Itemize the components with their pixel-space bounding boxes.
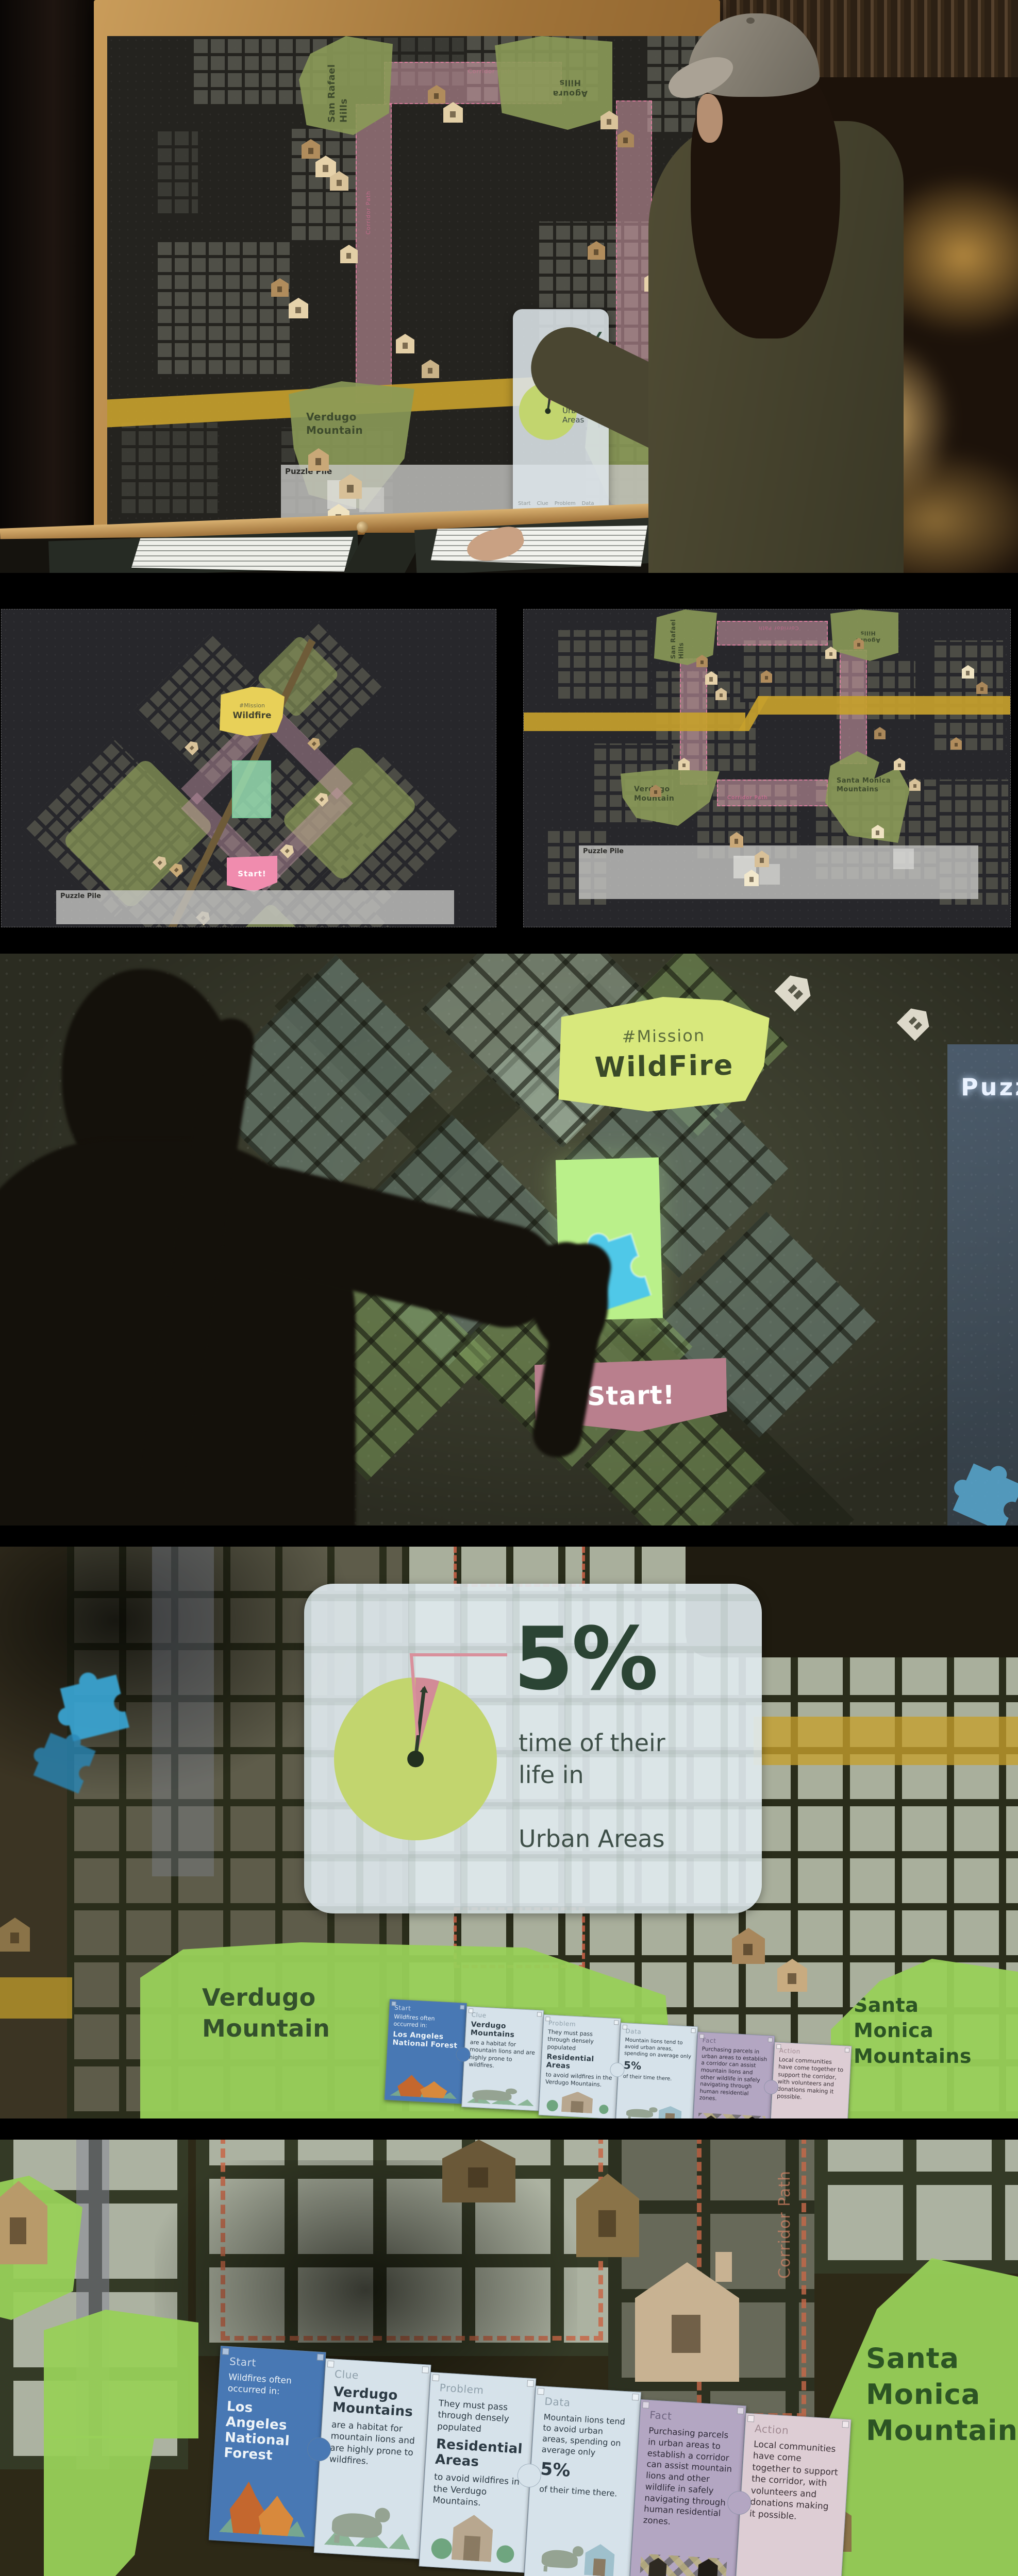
puzzle-card-body: are a habitat for mountain lions and are…	[469, 2039, 537, 2072]
puzzle-card-body: of their time there.	[623, 2073, 690, 2083]
house-chimney	[715, 2252, 732, 2282]
residential-illustration	[429, 2506, 519, 2563]
house-icon	[584, 2543, 615, 2576]
puzzle-side-sign: Puzzle	[947, 1044, 1018, 1526]
stat-caption-3: Urban Areas	[519, 1825, 665, 1853]
puzzle-card-title: Residential Areas	[435, 2436, 522, 2472]
lion-house-illustration	[534, 2536, 622, 2576]
green-area	[44, 2436, 155, 2576]
screenshot-mission-map[interactable]: #Mission Wildfire Start! Puzzle Pile	[1, 609, 496, 927]
infographic-photo-panel: 5% time of their life in Urban Areas Ver…	[0, 1547, 1018, 2119]
verdugo-label: Verdugo Mountain	[202, 1982, 419, 2044]
mountain-lion-icon	[472, 2089, 511, 2101]
house-icon	[774, 969, 817, 1011]
corridor-path-label: Corridor Path	[776, 2171, 794, 2279]
board-map-surface[interactable]: Corridor Path Corridor Path San Rafael H…	[107, 36, 707, 534]
corridor-road-bottom	[717, 779, 828, 806]
exhibit-photo-panel: Corridor Path Corridor Path San Rafael H…	[0, 0, 1018, 573]
puzzle-card-tag: Problem	[439, 2381, 526, 2399]
puzzle-card-start[interactable]: Start Wildfires often occurred in: Los A…	[385, 1999, 467, 2104]
puzzle-strip[interactable]: Start Wildfires often occurred in: Los A…	[205, 2346, 863, 2576]
tab-problem[interactable]: Problem	[555, 501, 576, 506]
corridor-path-label: Corridor Path	[727, 795, 768, 801]
house-icon	[0, 1918, 30, 1952]
board-frame: Corridor Path Corridor Path San Rafael H…	[94, 0, 720, 552]
mountain-area-agoura: Agoura Hills	[495, 36, 612, 130]
mountain-lion-illustration	[324, 2488, 413, 2550]
corridor-road-left	[356, 104, 392, 403]
puzzle-pile-label: Puzzle Pile	[60, 892, 101, 900]
puzzle-card-problem[interactable]: Problem They must pass through densely p…	[419, 2372, 537, 2573]
puzzle-card-intro: They must pass through densely populated	[437, 2398, 525, 2437]
puzzle-card-title: Residential Areas	[546, 2053, 613, 2073]
puzzle-card-tag: Fact	[649, 2409, 736, 2426]
lion-house-illustration	[621, 2102, 689, 2119]
tile-grid-far-right	[814, 2140, 1018, 2274]
city-block-cluster	[555, 630, 647, 702]
community-illustration	[744, 2570, 832, 2576]
puzzle-card-action[interactable]: Action Local communities have come toget…	[734, 2413, 852, 2576]
mission-tag[interactable]: #Mission Wildfire	[220, 687, 285, 736]
house-icon	[340, 245, 358, 263]
stat-value: 5%	[513, 1608, 656, 1709]
agoura-label: Agoura Hills	[546, 77, 594, 99]
wildfire-illustration	[390, 2072, 458, 2099]
city-block-cluster	[155, 242, 290, 377]
mission-drop-zone[interactable]	[232, 760, 271, 818]
corridor-highlight	[454, 1547, 585, 1587]
highway-road	[754, 1717, 1018, 1765]
puzzle-card-tag: Start	[229, 2355, 315, 2372]
projection-photo-panel: #Mission WildFire Start! Puzzle	[0, 954, 1018, 1526]
stat-caption-2: life in	[519, 1761, 584, 1789]
puzzle-card-body: are a habitat for mountain lions and are…	[329, 2419, 418, 2470]
house-icon	[396, 334, 414, 353]
desk-document-right[interactable]	[431, 526, 647, 567]
wildfire-illustration	[219, 2476, 308, 2537]
san-rafael-label: San Rafael Hills	[326, 50, 350, 123]
corridor-path-label: Corridor Path	[365, 191, 372, 234]
puzzle-card-intro: Wildfires often occurred in:	[393, 2013, 461, 2031]
puzzle-card-body: Local communities have come together to …	[749, 2439, 840, 2525]
city-block-cluster	[155, 129, 198, 216]
side-sign-label: Puzzle	[961, 1073, 1018, 1101]
puzzle-card-tag: Action	[754, 2422, 841, 2440]
tab-start[interactable]: Start	[518, 501, 530, 506]
puzzle-card-title: Verdugo Mountains	[332, 2384, 420, 2420]
house-icon	[289, 298, 308, 318]
pile-tile	[893, 849, 914, 869]
house-icon	[874, 727, 886, 739]
mountain-lion-illustration	[467, 2079, 535, 2106]
puzzle-card-title: 5%	[540, 2459, 627, 2485]
screenshot-row: #Mission Wildfire Start! Puzzle Pile	[0, 609, 1018, 927]
green-area	[44, 2310, 198, 2438]
house-icon	[443, 102, 463, 123]
stat-caption-1: time of their	[519, 1729, 665, 1757]
house-icon	[561, 2091, 593, 2113]
verdugo-label: Verdugo Mountain	[306, 410, 383, 437]
callout-line	[397, 1645, 510, 1737]
puzzle-card-tag: Action	[779, 2047, 846, 2058]
infographic-card[interactable]: 5% time of their life in Urban Areas	[304, 1584, 762, 1913]
house-icon	[897, 1003, 936, 1041]
puzzle-card-tag: Problem	[548, 2019, 616, 2030]
puzzle-card-intro: Wildfires often occurred in:	[227, 2371, 314, 2400]
puzzle-card-start[interactable]: Start Wildfires often occurred in: Los A…	[209, 2346, 326, 2547]
puzzle-card-clue[interactable]: Clue Verdugo Mountains are a habitat for…	[314, 2358, 431, 2559]
puzzle-card-body: to avoid wildfires in the Verdugo Mounta…	[432, 2471, 521, 2511]
puzzle-card-tag: Clue	[334, 2368, 421, 2385]
mountain-lion-icon	[541, 2549, 578, 2569]
cap-button	[746, 18, 755, 24]
pile-tile	[759, 864, 780, 885]
puzzle-card-data[interactable]: Data Mountain lions tend to avoid urban …	[615, 2023, 698, 2119]
mountain-lion-icon	[331, 2512, 382, 2539]
mountain-area-san-rafael: San Rafael Hills	[650, 609, 717, 665]
house-icon	[452, 2514, 494, 2562]
puzzle-card-problem[interactable]: Problem They must pass through densely p…	[539, 2014, 621, 2119]
mission-hash: #Mission	[239, 702, 265, 709]
puzzle-card-intro: Mountain lions tend to avoid urban areas…	[541, 2412, 630, 2460]
puzzle-card-title: 5%	[623, 2059, 691, 2075]
puzzle-card-title: Los Angeles National Forest	[392, 2030, 460, 2050]
puzzle-card-intro: Mountain lions tend to avoid urban areas…	[624, 2037, 692, 2060]
puzzle-card-tag: Data	[544, 2395, 631, 2413]
mountain-lion-icon	[626, 2108, 654, 2117]
puzzle-card-intro: They must pass through densely populated	[547, 2028, 615, 2054]
puzzle-card-tag: Fact	[702, 2037, 770, 2047]
puzzle-card-data[interactable]: Data Mountain lions tend to avoid urban …	[524, 2385, 641, 2576]
mission-hash: #Mission	[622, 1025, 705, 1046]
puzzle-card-tag: Clue	[471, 2011, 539, 2022]
puzzle-card-body: Purchasing parcels in urban areas to est…	[643, 2425, 735, 2531]
house-icon	[894, 758, 905, 770]
puzzle-pile-label: Puzzle Pile	[583, 848, 624, 855]
verdugo-label: Verdugo Mountain	[634, 785, 696, 803]
house-icon	[658, 2106, 682, 2119]
tab-clue[interactable]: Clue	[537, 501, 548, 506]
santa-monica-label: Santa Monica Mountains	[837, 777, 893, 794]
highway-road	[758, 696, 1011, 715]
puzzle-card-clue[interactable]: Clue Verdugo Mountains are a habitat for…	[461, 2006, 544, 2111]
desk-knob	[357, 521, 368, 533]
mission-name: WildFire	[594, 1048, 734, 1083]
corridor-illustration	[639, 2554, 727, 2576]
puzzle-card-action[interactable]: Action Local communities have come toget…	[769, 2042, 852, 2119]
puzzle-piece-icon	[947, 1434, 1018, 1526]
highway-road	[524, 713, 745, 731]
mission-tag[interactable]: #Mission WildFire	[557, 995, 771, 1113]
santa-monica-label: Santa Monica Mountains	[866, 2341, 1018, 2449]
curtain	[0, 0, 97, 573]
puzzle-card-title: Verdugo Mountains	[470, 2020, 538, 2040]
corridor-path-label: Corridor Path	[758, 625, 799, 631]
puzzle-card-title: Los Angeles National Forest	[223, 2399, 313, 2466]
desk-document-left[interactable]	[131, 537, 353, 572]
pile-tile	[359, 487, 384, 512]
puzzle-card-tag: Start	[394, 2004, 462, 2015]
puzzle-card-body: Purchasing parcels in urban areas to est…	[699, 2046, 769, 2106]
corridor-illustration	[698, 2113, 765, 2119]
house-icon	[422, 360, 439, 378]
puzzle-card-fact[interactable]: Fact Purchasing parcels in urban areas t…	[629, 2399, 746, 2576]
puzzle-card-body: Local communities have come together to …	[777, 2056, 846, 2104]
puzzle-pile-zone[interactable]: Puzzle Pile	[56, 890, 454, 924]
santa-monica-label: Santa Monica Mountains	[854, 1993, 982, 2069]
puzzle-strip-photo-panel: Corridor Path Verdugo Mountain Santa Mon…	[0, 2140, 1018, 2576]
roadway-tint	[152, 1547, 214, 1876]
puzzle-card-fact[interactable]: Fact Purchasing parcels in urban areas t…	[692, 2032, 775, 2119]
screenshot-city-map[interactable]: Corridor Path Corridor Path San Rafael H…	[523, 609, 1011, 927]
puzzle-card-body: to avoid wildfires in the Verdugo Mounta…	[545, 2071, 613, 2089]
puzzle-pile-zone[interactable]: Puzzle Pile	[579, 845, 978, 899]
mission-name: Wildfire	[232, 710, 271, 721]
san-rafael-label: San Rafael Hills	[670, 616, 686, 659]
city-block-cluster	[740, 640, 833, 702]
residential-illustration	[544, 2087, 612, 2114]
puzzle-card-tag: Data	[625, 2027, 693, 2038]
city-block-cluster	[119, 422, 218, 516]
highway-road	[0, 1977, 72, 2019]
puzzle-card-body: of their time there.	[539, 2484, 626, 2500]
